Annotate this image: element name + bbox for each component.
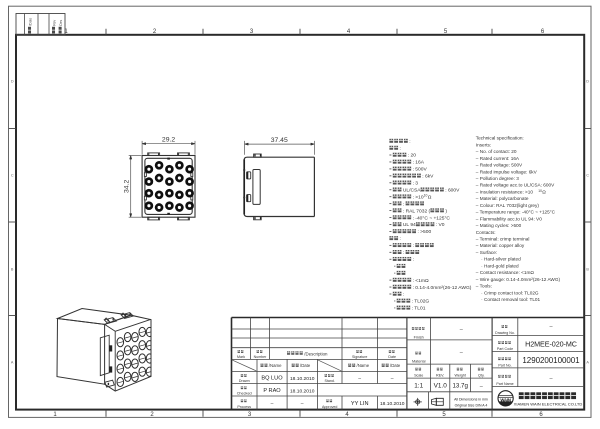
svg-text:· Crimp contact tool: TL02G: · Crimp contact tool: TL02G	[481, 290, 539, 295]
svg-text:UL 94: UL 94	[403, 222, 416, 228]
svg-text:– Flammability acc.to UL 94:: – Flammability acc.to UL 94: V0	[476, 216, 542, 221]
svg-text:: >10: : >10	[413, 194, 424, 200]
svg-text:Original Size DIN A 4: Original Size DIN A 4	[455, 403, 488, 407]
svg-text:· Hard-silver plated: · Hard-silver plated	[481, 257, 521, 262]
svg-text:UL/CSA: UL/CSA	[403, 187, 421, 193]
svg-text:Ω: Ω	[542, 189, 546, 194]
svg-text:/Description: /Description	[304, 351, 328, 356]
svg-text:Signature: Signature	[352, 355, 367, 359]
svg-text:YY LIN: YY LIN	[351, 401, 369, 407]
svg-text:/Date: /Date	[300, 363, 311, 368]
svg-text:– Tools:: – Tools:	[476, 284, 492, 289]
svg-text:: -40°C ~ +125°C: : -40°C ~ +125°C	[413, 215, 451, 221]
svg-text:: 600V: : 600V	[445, 187, 460, 193]
svg-text:– Material: copper alloy: – Material: copper alloy	[476, 243, 525, 248]
svg-text:REV.: REV.	[436, 374, 444, 378]
svg-text:B: B	[11, 267, 14, 271]
svg-text:Part No.: Part No.	[498, 363, 511, 367]
svg-text:– Rated voltage acc.to UL/CSA: – Rated voltage acc.to UL/CSA: 600V	[476, 183, 555, 188]
svg-text:18.10.2010: 18.10.2010	[290, 388, 315, 394]
svg-text:– Temperature range: -40°C ~: – Temperature range: -40°C ~ +125°C	[476, 210, 556, 215]
svg-text::: :	[403, 202, 404, 207]
svg-text:: V0: : V0	[436, 222, 445, 228]
svg-text:· Hard-gold plated: · Hard-gold plated	[481, 263, 519, 268]
svg-text:Ω: Ω	[428, 194, 432, 200]
svg-text:–: –	[271, 401, 274, 407]
svg-text:: >500: : >500	[417, 229, 431, 235]
svg-text:– Contact resistance: <1mΩ: – Contact resistance: <1mΩ	[476, 270, 535, 275]
svg-text:: RAL 7032 (: : RAL 7032 (	[403, 208, 431, 214]
svg-text:– Mating cycles: >500: – Mating cycles: >500	[476, 223, 522, 228]
svg-text:Stand.: Stand.	[325, 379, 335, 383]
svg-text:1290200100001: 1290200100001	[522, 356, 580, 365]
svg-text:– Colour: RAL 7032(light grey: – Colour: RAL 7032(light grey)	[476, 203, 540, 208]
svg-text:– Rated voltage: 500V: – Rated voltage: 500V	[476, 163, 523, 168]
svg-text:XIAMEN WAIN ELECTRICAL CO.LTD: XIAMEN WAIN ELECTRICAL CO.LTD	[514, 401, 583, 406]
svg-text:– Rated impulse voltage: 6kV: – Rated impulse voltage: 6kV	[476, 169, 538, 174]
svg-text:Part Code: Part Code	[497, 347, 513, 351]
svg-text:– Surface:: – Surface:	[476, 250, 497, 255]
svg-text:37.45: 37.45	[271, 137, 288, 144]
svg-text::: :	[413, 258, 414, 263]
svg-text:: TL02G: : TL02G	[412, 299, 430, 305]
svg-text:Date: Date	[388, 355, 396, 359]
svg-text:C: C	[11, 173, 14, 177]
svg-text::: :	[409, 140, 410, 145]
svg-text:18.10.2010: 18.10.2010	[380, 401, 405, 407]
svg-text:Part Name: Part Name	[496, 382, 513, 386]
svg-text:– Material: polycarbonate: – Material: polycarbonate	[476, 196, 529, 201]
svg-text:: 3: : 3	[413, 181, 419, 187]
svg-text:Weight: Weight	[454, 374, 465, 378]
svg-text:Des: Des	[59, 19, 63, 25]
svg-text:13.7g: 13.7g	[452, 382, 468, 389]
svg-text:Contacts:: Contacts:	[476, 230, 496, 235]
svg-text:: 500V: : 500V	[413, 167, 428, 173]
svg-text:: <1mΩ: : <1mΩ	[413, 278, 429, 284]
svg-text::: :	[400, 237, 401, 242]
svg-text:Drawn: Drawn	[239, 379, 250, 383]
svg-text:Approved: Approved	[322, 405, 337, 409]
svg-text:Mark: Mark	[237, 355, 245, 359]
svg-text:– No. of contact: 20: – No. of contact: 20	[476, 149, 517, 154]
svg-text:All Dimensions in mm: All Dimensions in mm	[454, 398, 488, 402]
svg-text:H2MEE-020-MC: H2MEE-020-MC	[525, 339, 577, 348]
svg-text:Inserts:: Inserts:	[476, 142, 491, 147]
svg-text::: :	[400, 147, 401, 152]
svg-text:A: A	[11, 360, 14, 364]
svg-text:/Name: /Name	[269, 363, 282, 368]
svg-text:P RAO: P RAO	[263, 388, 281, 394]
svg-text:Number: Number	[254, 355, 268, 359]
svg-text:/Date: /Date	[29, 18, 33, 26]
svg-text:–: –	[301, 401, 304, 407]
svg-text:· Contact removal tool: TL01: · Contact removal tool: TL01	[481, 297, 540, 302]
svg-text:Scale: Scale	[414, 374, 423, 378]
svg-text::: :	[403, 251, 404, 256]
svg-text:– Pollution degree: 3: – Pollution degree: 3	[476, 176, 519, 181]
svg-text:/Name: /Name	[357, 363, 370, 368]
svg-text::: :	[403, 293, 404, 298]
svg-text:34.2: 34.2	[124, 180, 131, 193]
svg-text:WAIN: WAIN	[500, 397, 511, 402]
svg-text:18.10.2010: 18.10.2010	[290, 376, 315, 382]
svg-text:D: D	[586, 79, 589, 83]
svg-text:– Terminal: crimp terminal: – Terminal: crimp terminal	[476, 237, 530, 242]
svg-text:Process: Process	[237, 405, 251, 409]
svg-text:Checked: Checked	[237, 391, 252, 395]
svg-text:Rev: Rev	[53, 19, 57, 25]
svg-text::: :	[413, 244, 414, 249]
svg-text:V1.0: V1.0	[434, 383, 448, 390]
svg-text:C: C	[586, 173, 589, 177]
svg-text:– Wire gauge: 0.14-4.0mm²(26-: – Wire gauge: 0.14-4.0mm²(26-12 AWG)	[476, 277, 561, 282]
svg-text:D: D	[11, 79, 14, 83]
svg-text:– Insulation resistance: >10: – Insulation resistance: >10	[476, 189, 534, 194]
svg-text:–: –	[358, 376, 361, 382]
svg-text:/Date: /Date	[390, 363, 401, 368]
svg-text:Material: Material	[412, 360, 426, 364]
svg-text:: 16A: : 16A	[413, 160, 425, 166]
svg-text:1:1: 1:1	[414, 383, 423, 390]
svg-text:– Rated current: 16A: – Rated current: 16A	[476, 156, 520, 161]
svg-text:Finish: Finish	[414, 335, 424, 339]
svg-text:: 0.14-4.0mm²(26-12 AWG): : 0.14-4.0mm²(26-12 AWG)	[413, 285, 472, 291]
svg-text:: 6kV: : 6kV	[422, 174, 434, 180]
svg-text:–: –	[391, 376, 394, 382]
svg-text:Qty.: Qty.	[478, 374, 485, 378]
svg-text:Technical specification:: Technical specification:	[476, 136, 524, 141]
svg-text:: 20: : 20	[408, 153, 416, 159]
svg-text:BQ LUO: BQ LUO	[261, 376, 283, 382]
svg-text:29.2: 29.2	[162, 137, 175, 144]
svg-text:Drawing No.: Drawing No.	[495, 331, 515, 335]
svg-text:: TL01: : TL01	[412, 306, 426, 312]
